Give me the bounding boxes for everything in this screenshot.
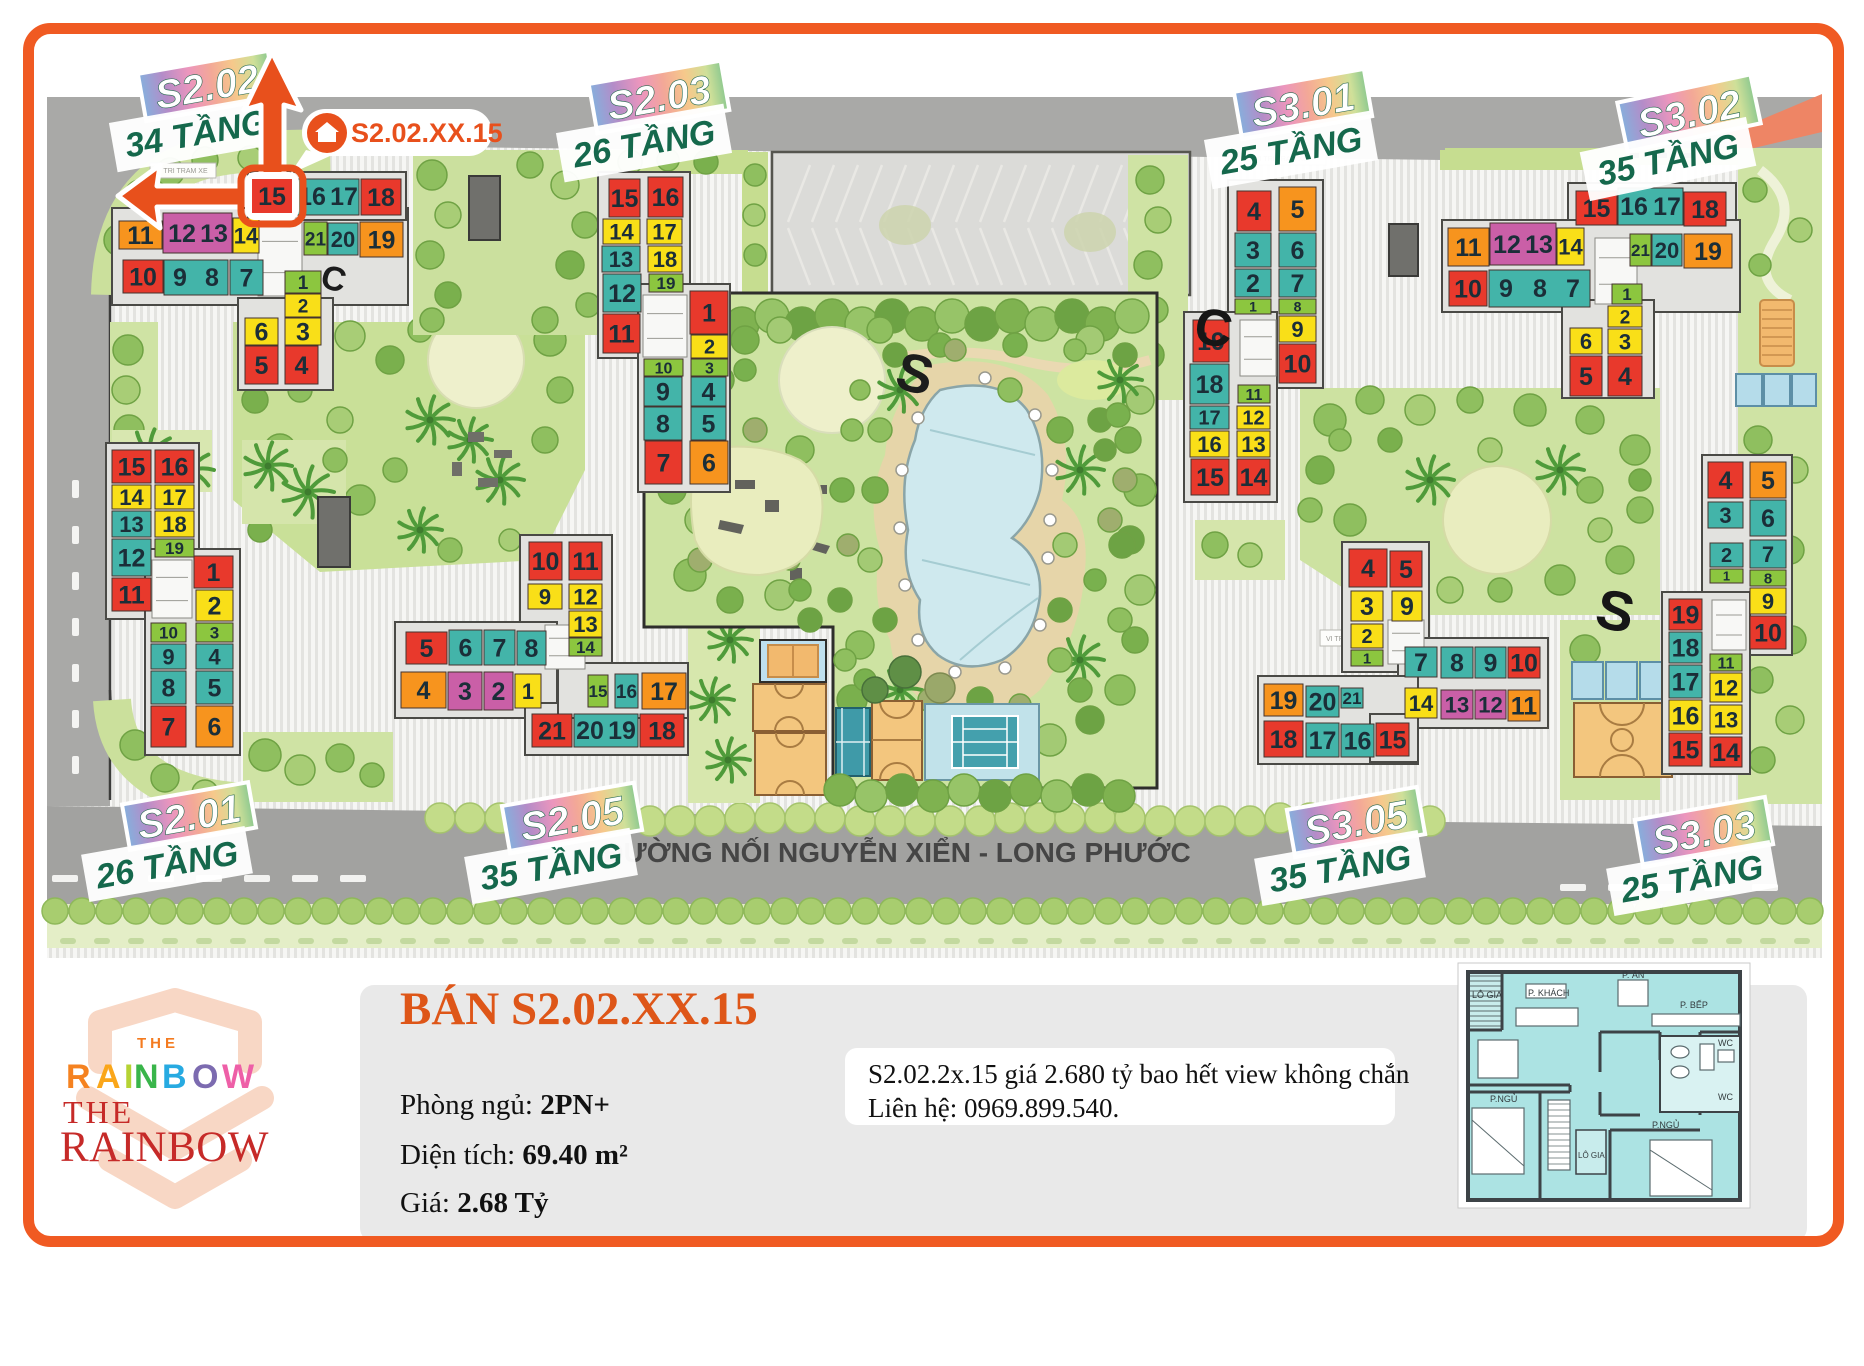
- svg-text:12: 12: [1478, 692, 1502, 717]
- svg-text:14: 14: [1409, 691, 1434, 716]
- svg-text:8: 8: [205, 264, 219, 292]
- svg-text:17: 17: [1198, 408, 1220, 430]
- svg-text:19: 19: [1672, 602, 1700, 630]
- svg-text:15: 15: [1672, 737, 1700, 765]
- svg-text:15: 15: [1196, 464, 1224, 492]
- svg-text:3: 3: [1360, 593, 1374, 621]
- svg-text:P. KHÁCH: P. KHÁCH: [1528, 988, 1569, 998]
- svg-text:3: 3: [210, 624, 219, 643]
- svg-text:18: 18: [1270, 726, 1298, 754]
- svg-text:13: 13: [1241, 432, 1265, 457]
- svg-text:7: 7: [240, 265, 254, 293]
- svg-text:12: 12: [608, 280, 636, 308]
- svg-text:19: 19: [608, 717, 636, 745]
- svg-text:Diện tích: 69.40 m²: Diện tích: 69.40 m²: [400, 1139, 628, 1171]
- svg-text:6: 6: [459, 635, 473, 663]
- svg-text:12: 12: [1714, 675, 1738, 700]
- svg-text:17: 17: [330, 183, 358, 211]
- svg-text:18: 18: [162, 512, 186, 537]
- svg-text:16: 16: [652, 184, 680, 212]
- svg-text:8: 8: [1450, 650, 1464, 678]
- svg-text:16: 16: [1620, 193, 1648, 221]
- svg-text:N: N: [134, 1058, 159, 1096]
- svg-text:2: 2: [1620, 307, 1631, 328]
- svg-text:9: 9: [173, 264, 187, 292]
- svg-text:5: 5: [1761, 467, 1775, 495]
- svg-text:6: 6: [255, 319, 269, 347]
- svg-text:3: 3: [458, 678, 472, 706]
- svg-text:21: 21: [1631, 241, 1650, 260]
- svg-text:16: 16: [1344, 728, 1372, 756]
- svg-text:Giá: 2.68 Tỷ: Giá: 2.68 Tỷ: [400, 1187, 549, 1219]
- svg-text:20: 20: [331, 227, 355, 252]
- svg-text:14: 14: [609, 219, 634, 244]
- svg-text:19: 19: [165, 539, 184, 558]
- svg-text:3: 3: [1719, 503, 1731, 528]
- svg-text:9: 9: [162, 644, 174, 669]
- svg-text:13: 13: [119, 512, 143, 537]
- svg-text:6: 6: [1291, 237, 1305, 265]
- svg-text:1: 1: [522, 679, 534, 704]
- svg-text:17: 17: [652, 219, 676, 244]
- svg-text:10: 10: [655, 360, 673, 377]
- svg-text:18: 18: [1196, 371, 1224, 399]
- svg-text:5: 5: [1579, 363, 1593, 391]
- svg-text:12: 12: [573, 584, 597, 609]
- svg-text:17: 17: [650, 678, 678, 706]
- svg-text:9: 9: [539, 584, 551, 609]
- svg-text:15: 15: [118, 454, 146, 482]
- svg-text:16: 16: [616, 682, 637, 703]
- svg-text:7: 7: [1414, 649, 1428, 677]
- svg-text:7: 7: [657, 450, 671, 478]
- svg-text:W: W: [222, 1058, 255, 1096]
- svg-text:8: 8: [1764, 570, 1772, 587]
- svg-text:9: 9: [1484, 650, 1498, 678]
- svg-text:10: 10: [129, 264, 157, 292]
- svg-text:P.NGỦ: P.NGỦ: [1652, 1119, 1679, 1130]
- svg-text:S2.02.2x.15 giá 2.680 tỷ bao h: S2.02.2x.15 giá 2.680 tỷ bao hết view kh…: [868, 1059, 1410, 1089]
- svg-text:B: B: [162, 1058, 187, 1096]
- svg-text:A: A: [96, 1058, 121, 1096]
- svg-text:11: 11: [572, 548, 599, 576]
- svg-text:12: 12: [118, 545, 146, 573]
- svg-text:9: 9: [1499, 275, 1513, 303]
- svg-text:7: 7: [493, 635, 507, 663]
- svg-text:10: 10: [1754, 620, 1782, 648]
- svg-text:2: 2: [704, 337, 715, 359]
- svg-text:6: 6: [702, 450, 716, 478]
- svg-text:11: 11: [1246, 387, 1263, 404]
- svg-text:11: 11: [118, 582, 145, 610]
- svg-text:14: 14: [1712, 739, 1740, 767]
- svg-text:4: 4: [1247, 198, 1261, 226]
- svg-text:17: 17: [162, 485, 186, 510]
- svg-text:2: 2: [1721, 545, 1732, 567]
- svg-text:4: 4: [208, 644, 221, 669]
- svg-text:8: 8: [1294, 299, 1302, 315]
- svg-text:3: 3: [705, 360, 714, 377]
- svg-text:19: 19: [657, 274, 676, 293]
- svg-text:4: 4: [1719, 467, 1733, 495]
- svg-text:11: 11: [1718, 655, 1735, 672]
- svg-text:11: 11: [608, 321, 635, 349]
- svg-text:5: 5: [1291, 196, 1305, 224]
- svg-text:6: 6: [1580, 329, 1592, 354]
- svg-text:1: 1: [207, 559, 221, 587]
- svg-text:P.NGỦ: P.NGỦ: [1490, 1093, 1517, 1104]
- svg-text:WC: WC: [1718, 1038, 1733, 1048]
- svg-text:R: R: [66, 1058, 91, 1096]
- svg-text:11: 11: [1455, 234, 1482, 262]
- svg-text:18: 18: [367, 184, 395, 212]
- svg-text:1: 1: [1622, 285, 1631, 304]
- svg-text:14: 14: [1240, 464, 1268, 492]
- svg-text:RAINBOW: RAINBOW: [60, 1124, 269, 1171]
- svg-text:WC: WC: [1718, 1092, 1733, 1102]
- svg-text:18: 18: [1691, 196, 1719, 224]
- svg-text:2: 2: [1361, 626, 1372, 648]
- svg-text:17: 17: [1672, 669, 1700, 697]
- svg-text:O: O: [192, 1058, 218, 1096]
- svg-text:4: 4: [295, 352, 309, 380]
- svg-text:7: 7: [162, 714, 176, 742]
- svg-text:2: 2: [1246, 270, 1260, 298]
- svg-text:11: 11: [127, 222, 154, 250]
- svg-text:21: 21: [305, 229, 327, 250]
- svg-text:THE: THE: [137, 1035, 179, 1052]
- svg-text:9: 9: [1762, 589, 1774, 614]
- svg-text:7: 7: [1291, 270, 1305, 298]
- svg-text:8: 8: [1533, 275, 1547, 303]
- svg-text:17: 17: [1653, 193, 1681, 221]
- svg-text:9: 9: [1291, 317, 1303, 342]
- svg-text:1: 1: [298, 273, 309, 294]
- svg-text:20: 20: [1655, 238, 1679, 263]
- svg-text:1: 1: [1723, 569, 1730, 584]
- svg-text:15: 15: [1379, 727, 1407, 755]
- svg-text:10: 10: [1454, 276, 1482, 304]
- svg-text:C: C: [1191, 297, 1236, 360]
- svg-text:10: 10: [532, 548, 560, 576]
- svg-text:3: 3: [296, 319, 310, 347]
- svg-text:8: 8: [162, 675, 176, 703]
- svg-text:8: 8: [656, 411, 670, 439]
- svg-text:18: 18: [1672, 635, 1700, 663]
- svg-text:5: 5: [255, 352, 269, 380]
- svg-text:16: 16: [1672, 703, 1700, 731]
- svg-text:2: 2: [298, 296, 309, 317]
- svg-text:7: 7: [1762, 542, 1774, 567]
- svg-text:13: 13: [1714, 707, 1738, 732]
- svg-text:14: 14: [576, 638, 595, 657]
- svg-text:1: 1: [702, 300, 716, 328]
- svg-text:16: 16: [161, 454, 189, 482]
- svg-text:9: 9: [1400, 593, 1414, 621]
- svg-text:19: 19: [1694, 238, 1722, 266]
- svg-text:3: 3: [1619, 329, 1631, 354]
- svg-text:21: 21: [538, 718, 566, 746]
- svg-text:16: 16: [1197, 432, 1221, 457]
- svg-text:VI TRI TRAM XE: VI TRI TRAM XE: [155, 168, 208, 175]
- svg-text:5: 5: [702, 411, 716, 439]
- svg-text:Phòng ngủ: 2PN+: Phòng ngủ: 2PN+: [400, 1089, 610, 1121]
- svg-text:Liên hệ: 0969.899.540.: Liên hệ: 0969.899.540.: [868, 1093, 1119, 1123]
- svg-text:LÔ GIA: LÔ GIA: [1472, 990, 1502, 1000]
- svg-text:3: 3: [1246, 237, 1260, 265]
- svg-text:20: 20: [1309, 689, 1337, 717]
- svg-text:14: 14: [119, 485, 144, 510]
- svg-text:10: 10: [1284, 351, 1312, 379]
- svg-text:10: 10: [159, 624, 178, 643]
- svg-text:P. BẾP: P. BẾP: [1680, 1000, 1708, 1010]
- svg-text:15: 15: [611, 185, 639, 213]
- svg-text:1: 1: [1363, 650, 1371, 667]
- svg-text:BÁN S2.02.XX.15: BÁN S2.02.XX.15: [400, 983, 758, 1035]
- svg-text:10: 10: [1510, 650, 1538, 678]
- svg-text:11: 11: [1511, 693, 1538, 721]
- svg-text:18: 18: [653, 247, 677, 272]
- svg-text:21: 21: [1343, 689, 1362, 708]
- svg-text:9: 9: [656, 379, 670, 407]
- svg-text:19: 19: [368, 227, 396, 255]
- svg-text:4: 4: [702, 379, 716, 407]
- svg-text:S2.02.XX.15: S2.02.XX.15: [351, 118, 503, 148]
- svg-text:2: 2: [208, 593, 222, 621]
- svg-text:P. ĂN: P. ĂN: [1622, 970, 1644, 980]
- svg-text:13: 13: [1445, 692, 1469, 717]
- svg-text:13: 13: [1525, 231, 1553, 259]
- svg-text:1: 1: [1249, 299, 1257, 315]
- svg-text:5: 5: [420, 635, 434, 663]
- svg-text:LÔ GIA: LÔ GIA: [1578, 1151, 1605, 1160]
- svg-text:4: 4: [1361, 555, 1375, 583]
- svg-text:4: 4: [417, 677, 431, 705]
- svg-text:12: 12: [1493, 231, 1521, 259]
- svg-text:5: 5: [1399, 556, 1413, 584]
- svg-text:6: 6: [1761, 505, 1775, 533]
- svg-text:18: 18: [648, 718, 676, 746]
- svg-text:4: 4: [1618, 363, 1632, 391]
- svg-text:ĐƯỜNG NỐI NGUYỄN XIỂN - LONG P: ĐƯỜNG NỐI NGUYỄN XIỂN - LONG PHƯỚC: [603, 836, 1190, 868]
- svg-text:8: 8: [525, 635, 539, 663]
- svg-text:15: 15: [258, 183, 286, 211]
- svg-text:13: 13: [200, 220, 228, 248]
- svg-text:15: 15: [589, 682, 608, 701]
- svg-text:17: 17: [1309, 727, 1337, 755]
- svg-text:13: 13: [609, 247, 633, 272]
- svg-text:14: 14: [1558, 234, 1583, 259]
- svg-text:12: 12: [1242, 408, 1264, 430]
- svg-text:19: 19: [1270, 687, 1298, 715]
- svg-text:I: I: [124, 1058, 133, 1096]
- svg-text:13: 13: [573, 612, 597, 637]
- svg-text:6: 6: [208, 714, 222, 742]
- svg-text:5: 5: [208, 675, 222, 703]
- svg-text:2: 2: [492, 678, 506, 706]
- svg-text:12: 12: [168, 220, 196, 248]
- svg-text:20: 20: [576, 717, 604, 745]
- svg-text:7: 7: [1566, 275, 1580, 303]
